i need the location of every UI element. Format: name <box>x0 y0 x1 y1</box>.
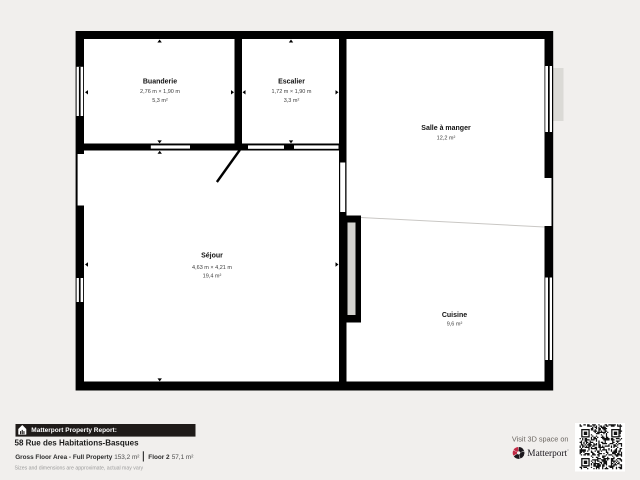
svg-text:Escalier: Escalier <box>278 79 305 86</box>
svg-text:Buanderie: Buanderie <box>143 79 177 86</box>
svg-text:Matterport Property Report:: Matterport Property Report: <box>31 427 117 434</box>
svg-text:Gross Floor Area - Full Proper: Gross Floor Area - Full Property <box>15 454 113 461</box>
svg-text:Visit 3D space on: Visit 3D space on <box>512 434 569 443</box>
svg-text:57,1 m²: 57,1 m² <box>172 454 194 461</box>
svg-text:19,4 m²: 19,4 m² <box>203 273 222 279</box>
svg-text:Salle à manger: Salle à manger <box>421 125 471 132</box>
svg-text:Cuisine: Cuisine <box>442 312 467 319</box>
svg-text:2,76 m × 1,90 m: 2,76 m × 1,90 m <box>140 89 180 95</box>
svg-text:Matterport’: Matterport’ <box>527 449 569 459</box>
svg-text:5,3 m²: 5,3 m² <box>152 98 168 104</box>
svg-text:1,72 m × 1,90 m: 1,72 m × 1,90 m <box>272 89 312 95</box>
svg-text:Floor 2: Floor 2 <box>148 454 170 461</box>
svg-text:153,2 m²: 153,2 m² <box>114 454 139 461</box>
svg-text:9,6 m²: 9,6 m² <box>447 321 463 327</box>
svg-text:Sizes and dimensions are appro: Sizes and dimensions are approximate, ac… <box>15 465 144 471</box>
svg-text:Séjour: Séjour <box>201 253 223 260</box>
svg-text:4,63 m × 4,21 m: 4,63 m × 4,21 m <box>192 265 232 271</box>
svg-text:3,3 m²: 3,3 m² <box>284 98 300 104</box>
svg-text:12,2 m²: 12,2 m² <box>437 136 456 142</box>
svg-text:58 Rue des Habitations-Basques: 58 Rue des Habitations-Basques <box>15 439 140 448</box>
